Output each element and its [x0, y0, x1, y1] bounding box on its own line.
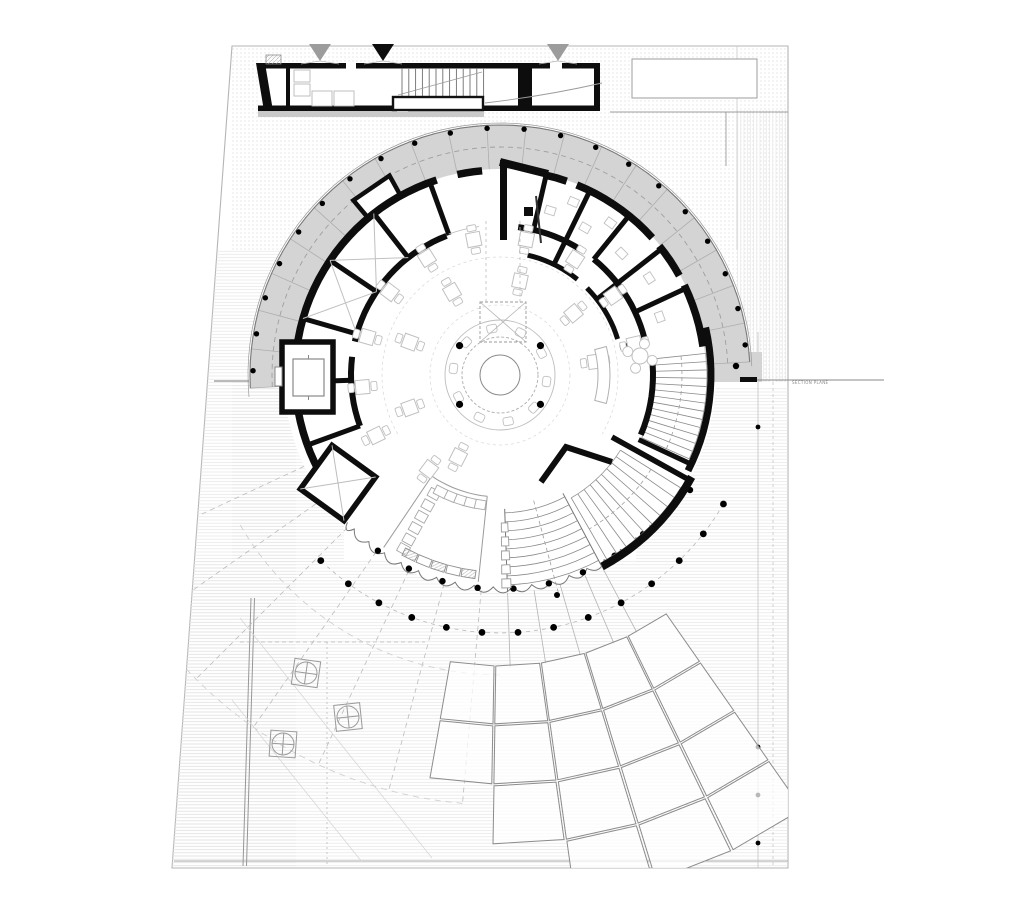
column-dot — [742, 342, 747, 347]
building-wall — [258, 63, 600, 69]
column-dot — [756, 425, 761, 430]
column-dot — [378, 156, 383, 161]
round-chair — [631, 363, 641, 373]
column-dot — [474, 585, 480, 591]
outer-wall-arc — [457, 171, 482, 175]
column-dot — [515, 629, 522, 636]
site-building-outline — [632, 59, 757, 98]
column-dot — [733, 363, 739, 369]
column-dot — [735, 306, 740, 311]
column-dot — [347, 176, 352, 181]
drawing-shape — [371, 381, 378, 390]
column-dot — [375, 599, 382, 606]
column-dot — [408, 614, 415, 621]
drawing-shape — [517, 266, 527, 274]
column-dot — [254, 331, 259, 336]
column-dot — [700, 530, 707, 537]
building-wall — [286, 63, 290, 111]
column-dot — [756, 841, 761, 846]
column-dot — [317, 557, 324, 564]
column-dot — [593, 145, 598, 150]
balustrade-post — [502, 551, 510, 560]
balustrade-post — [502, 565, 511, 574]
drawing-shape — [348, 383, 355, 392]
column-dot — [296, 229, 301, 234]
terrace-panel — [495, 663, 548, 724]
fixture — [294, 84, 310, 96]
plinth-strip — [258, 111, 484, 117]
elevator-door — [275, 367, 282, 386]
drawing-shape — [518, 231, 534, 247]
column-dot — [375, 548, 381, 554]
round-chair — [647, 355, 657, 365]
drawing-shape — [519, 247, 529, 255]
column-dot — [263, 295, 268, 300]
terrace-panel — [494, 723, 556, 784]
door-opening — [346, 63, 356, 70]
round-chair — [623, 347, 633, 357]
chimney — [266, 55, 281, 64]
column-dot — [484, 126, 489, 131]
column-dot — [723, 271, 728, 276]
bar-stool — [542, 376, 551, 387]
column-dot — [456, 342, 463, 349]
drawing-shape — [471, 247, 481, 255]
door-opening — [550, 63, 562, 70]
drawing-shape — [461, 568, 476, 578]
section-plane-label: SECTION PLANE — [792, 380, 829, 385]
column-dot — [585, 614, 592, 621]
column-dot — [448, 130, 453, 135]
building-wall — [594, 63, 600, 111]
drawing-shape — [355, 379, 370, 394]
column-dot — [406, 565, 412, 571]
column-dot — [320, 201, 325, 206]
fixture — [312, 91, 332, 106]
column-dot — [250, 368, 255, 373]
column-dot — [558, 133, 563, 138]
column-dot — [443, 624, 450, 631]
drawing-shape — [542, 376, 551, 387]
drawing-shape — [466, 224, 476, 232]
floor-plan-canvas: SECTION PLANE — [0, 0, 1024, 924]
column-dot — [720, 501, 727, 508]
balustrade-post — [502, 579, 511, 588]
bar-stool — [503, 416, 514, 426]
section-plane-marker — [740, 377, 757, 382]
elevator-shaft — [282, 342, 333, 412]
column-dot — [537, 342, 544, 349]
balustrade-post — [501, 537, 509, 546]
floor-plan-page: SECTION PLANE — [0, 0, 1024, 924]
base-cabinet — [461, 568, 476, 578]
column-dot — [656, 183, 661, 188]
stair-landing — [393, 97, 483, 110]
terrace-panel — [440, 662, 494, 724]
terrace-panel — [430, 721, 493, 784]
column-dot — [345, 580, 352, 587]
column-dot — [648, 580, 655, 587]
column-dot — [456, 401, 463, 408]
bar-stool — [449, 363, 458, 374]
column-dot — [521, 126, 526, 131]
column-dot — [626, 161, 631, 166]
balustrade-post — [501, 523, 508, 532]
column-dot — [412, 140, 417, 145]
column-dot — [537, 401, 544, 408]
round-chair — [639, 339, 649, 349]
column-dot — [580, 569, 586, 575]
column-dot — [479, 629, 486, 636]
column-dot — [683, 209, 688, 214]
drawing-shape — [580, 358, 587, 368]
column-dot — [550, 624, 557, 631]
column-dot — [439, 578, 445, 584]
entrance-notch-wall — [500, 160, 507, 240]
building-wall — [518, 63, 532, 111]
column-dot — [676, 557, 683, 564]
drawing-shape — [359, 328, 376, 345]
drawing-shape — [503, 416, 514, 426]
column-dot — [618, 599, 625, 606]
fixture — [334, 91, 354, 106]
drawing-shape — [513, 288, 523, 296]
column-dot — [554, 592, 560, 598]
round-table — [632, 348, 648, 364]
drawing-shape — [524, 224, 534, 232]
drawing-shape — [449, 363, 458, 374]
drawing-shape — [465, 231, 481, 247]
door-pivot — [524, 207, 533, 216]
terrace-panel — [493, 782, 564, 844]
column-dot — [546, 580, 552, 586]
column-dot — [705, 238, 710, 243]
column-dot — [277, 261, 282, 266]
fixture — [294, 70, 310, 82]
